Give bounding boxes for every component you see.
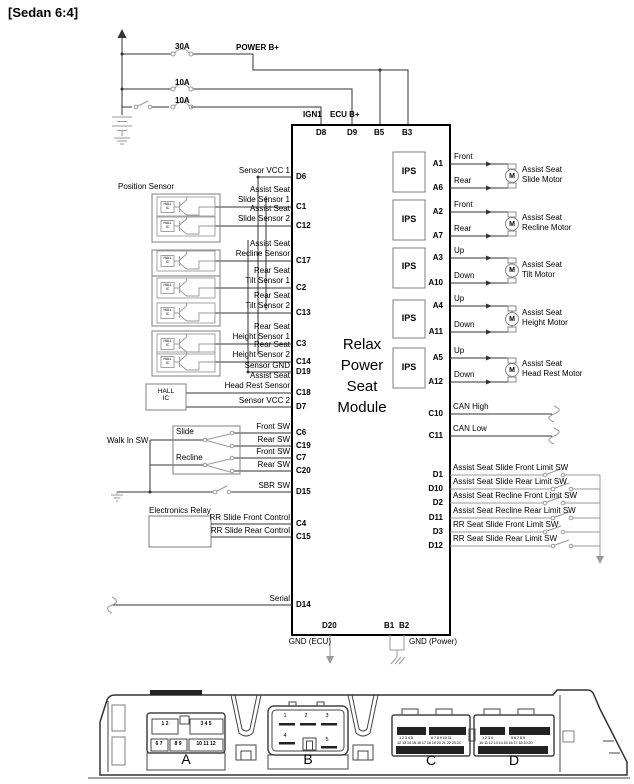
fuse-10a-1-label: 10A xyxy=(175,78,190,88)
connector-pin-numbers: 8 9 xyxy=(175,742,182,747)
motor-name-label: Assist Seat Slide Motor xyxy=(522,165,562,184)
motor-name-label: Assist Seat Recline Motor xyxy=(522,213,571,232)
electronics-relay-box xyxy=(149,516,211,547)
connector-b-label: B xyxy=(303,755,312,765)
signal-label: Front SW xyxy=(256,447,290,457)
pin-label: A10 xyxy=(428,278,443,288)
hall-ic-small-label: HALL IC xyxy=(161,358,174,366)
pin-label-b5: B5 xyxy=(374,128,384,138)
pin-label: C1 xyxy=(296,202,306,212)
hall-ic-small-label: HALL IC xyxy=(161,203,174,211)
ips-label: IPS xyxy=(402,363,417,373)
signal-label: Rear Seat Height Sensor 2 xyxy=(233,340,290,359)
pin-label-b1: B1 xyxy=(384,621,394,631)
can-high-label: CAN High xyxy=(453,402,489,412)
direction-label: Front xyxy=(454,152,473,162)
signal-label: Sensor VCC 2 xyxy=(239,396,290,406)
ground-icon xyxy=(111,492,123,501)
pin-label: C20 xyxy=(296,466,311,476)
pin-label: D3 xyxy=(433,527,443,537)
pin-label: A7 xyxy=(433,231,443,241)
connector-pin-numbers: 6 7 xyxy=(156,742,163,747)
ips-label: IPS xyxy=(402,262,417,272)
module-housing-drawing xyxy=(88,690,630,778)
motor-name-label: Assist Seat Height Motor xyxy=(522,308,568,327)
connector-c-drawing xyxy=(392,709,470,756)
limit-sw-label: Assist Seat Recline Front Limit SW xyxy=(453,491,577,501)
pin-label: A1 xyxy=(433,159,443,169)
wiring-diagram-page: [Sedan 6:4] 30A 10A 10A POWER B+ IGN1 EC… xyxy=(0,0,634,784)
connector-d-drawing xyxy=(474,709,554,756)
fuse-30a-label: 30A xyxy=(175,42,190,52)
hall-ic-small-label: HALL IC xyxy=(161,222,174,230)
serial-label: Serial xyxy=(270,594,290,604)
module-title: Relax Power Seat Module xyxy=(337,334,386,418)
signal-label: Rear Seat Tilt Sensor 2 xyxy=(245,291,290,310)
hall-ic-small-label: HALL IC xyxy=(161,257,174,265)
direction-label: Up xyxy=(454,294,464,304)
ignition-switch-icon xyxy=(134,101,152,109)
mounting-tab-icon xyxy=(348,695,378,760)
pin-label: D7 xyxy=(296,402,306,412)
pin-label: C7 xyxy=(296,453,306,463)
motor-m-label: M xyxy=(509,366,515,376)
sbr-sw-label: SBR SW xyxy=(258,481,290,491)
sbr-switch-icon xyxy=(213,486,231,494)
motor-m-label: M xyxy=(509,315,515,325)
pin-label: C3 xyxy=(296,339,306,349)
pin-label: C13 xyxy=(296,308,311,318)
connector-c-label: C xyxy=(426,756,436,766)
signal-label: Front SW xyxy=(256,422,290,432)
pin-label-d9: D9 xyxy=(347,128,357,138)
direction-label: Front xyxy=(454,200,473,210)
connector-pin-numbers: 12 13 14 15 16 17 18 19 20 21 22 23 24 xyxy=(397,741,461,746)
connector-pin-numbers: 3 4 5 xyxy=(200,722,211,727)
hall-ic-small-label: HALL IC xyxy=(161,309,174,317)
signal-label: Assist Seat Head Rest Sensor xyxy=(225,371,290,390)
arrow-up-icon xyxy=(118,29,127,38)
pin-label: D14 xyxy=(296,600,311,610)
pin-label: D15 xyxy=(296,487,311,497)
motor-name-label: Assist Seat Tilt Motor xyxy=(522,260,562,279)
signal-label: Assist Seat Slide Sensor 2 xyxy=(238,204,290,223)
connector-pin-numbers: 1 2 xyxy=(162,722,169,727)
pin-label: D11 xyxy=(429,513,443,523)
pin-label: C10 xyxy=(428,409,443,419)
pin-label: C6 xyxy=(296,428,306,438)
direction-label: Rear xyxy=(454,176,471,186)
pin-label: D6 xyxy=(296,172,306,182)
signal-label: Rear SW xyxy=(258,460,290,470)
hall-ic-small-label: HALL IC xyxy=(161,284,174,292)
fuse-10a-2-label: 10A xyxy=(175,96,190,106)
pin-label: D2 xyxy=(433,498,443,508)
pin-label: D12 xyxy=(428,541,443,551)
motor-m-label: M xyxy=(509,172,515,182)
connector-pin-numbers: 5 xyxy=(325,737,328,743)
pin-label-b3: B3 xyxy=(402,128,412,138)
battery-icon xyxy=(112,117,132,144)
pin-label: C15 xyxy=(296,532,311,542)
arrow-down-icon xyxy=(596,556,604,564)
gnd-power-wire xyxy=(390,635,405,664)
can-low-label: CAN Low xyxy=(453,424,487,434)
power-b-plus-label: POWER B+ xyxy=(236,43,279,53)
signal-label: RR Slide Front Control xyxy=(210,513,290,523)
slide-label: Slide xyxy=(176,427,194,437)
ign1-label: IGN1 xyxy=(303,110,322,120)
signal-label: Rear Seat Height Sensor 1 xyxy=(233,322,290,341)
pin-label: C4 xyxy=(296,519,306,529)
motor-m-label: M xyxy=(509,220,515,230)
signal-label: Rear Seat Tilt Sensor 1 xyxy=(245,266,290,285)
direction-label: Down xyxy=(454,370,474,380)
direction-label: Up xyxy=(454,346,464,356)
signal-label: RR Slide Rear Control xyxy=(211,526,290,536)
connector-a-label: A xyxy=(181,755,190,765)
recline-label: Recline xyxy=(176,453,203,463)
signal-label: Sensor VCC 1 xyxy=(239,166,290,176)
signal-label: Rear SW xyxy=(258,435,290,445)
position-sensor-label: Position Sensor xyxy=(118,182,174,192)
arrow-down-icon xyxy=(326,656,334,664)
pin-label: C12 xyxy=(296,221,311,231)
direction-label: Rear xyxy=(454,224,471,234)
pin-label: D1 xyxy=(433,470,443,480)
ips-label: IPS xyxy=(402,167,417,177)
hall-ic-box-label: HALL IC xyxy=(158,388,174,402)
mounting-tab-icon xyxy=(231,695,261,760)
connector-pin-numbers: 10 11 12 xyxy=(196,742,215,747)
direction-label: Down xyxy=(454,271,474,281)
connector-pin-numbers: 4 xyxy=(283,733,286,739)
chassis-ground-icon xyxy=(391,657,405,664)
pin-label: A3 xyxy=(433,253,443,263)
gnd-ecu-label: GND (ECU) xyxy=(289,637,331,647)
hall-ic-small-label: HALL IC xyxy=(161,340,174,348)
gnd-power-label: GND (Power) xyxy=(409,637,457,647)
direction-label: Down xyxy=(454,320,474,330)
motor-name-label: Assist Seat Head Rest Motor xyxy=(522,359,582,378)
walk-in-switch-icons xyxy=(203,431,234,473)
page-title: [Sedan 6:4] xyxy=(8,6,78,20)
ips-label: IPS xyxy=(402,314,417,324)
pin-label: A12 xyxy=(428,377,443,387)
connector-d-label: D xyxy=(509,756,519,766)
limit-sw-label: Assist Seat Slide Front Limit SW xyxy=(453,463,568,473)
pin-label: C18 xyxy=(296,388,311,398)
pin-label: A6 xyxy=(433,183,443,193)
pin-label: A4 xyxy=(433,301,443,311)
pin-label: C19 xyxy=(296,441,311,451)
signal-label: Sensor GND xyxy=(245,361,290,371)
limit-sw-label: Assist Seat Slide Rear Limit SW xyxy=(453,477,567,487)
pin-label: D10 xyxy=(428,484,443,494)
pin-label: C11 xyxy=(429,431,443,441)
connector-pin-numbers: 1 xyxy=(283,713,286,719)
direction-label: Up xyxy=(454,246,464,256)
pin-label-b2: B2 xyxy=(399,621,409,631)
pin-label: A2 xyxy=(433,207,443,217)
ecu-b-plus-label: ECU B+ xyxy=(330,110,360,120)
pin-label: C14 xyxy=(296,357,311,367)
electronics-relay-label: Electronics Relay xyxy=(149,506,211,516)
connector-pin-numbers: 3 xyxy=(325,713,328,719)
pin-label-d20: D20 xyxy=(322,621,337,631)
pin-label-d8: D8 xyxy=(316,128,326,138)
connector-pin-numbers: 2 xyxy=(304,713,307,719)
motor-m-label: M xyxy=(509,266,515,276)
limit-sw-label: RR Seat Slide Rear Limit SW xyxy=(453,534,557,544)
pin-label: C17 xyxy=(296,256,311,266)
ips-label: IPS xyxy=(402,215,417,225)
signal-label: Assist Seat Recline Sensor xyxy=(236,239,290,258)
limit-sw-label: RR Seat Slide Front Limit SW xyxy=(453,520,558,530)
pin-label: D19 xyxy=(296,367,311,377)
pin-label: C2 xyxy=(296,283,306,293)
signal-label: Assist Seat Slide Sensor 1 xyxy=(238,185,290,204)
pin-label: A5 xyxy=(433,353,443,363)
connector-pin-numbers: 10 11 12 13 14 15 16 17 18 19 20 xyxy=(479,741,532,746)
limit-sw-label: Assist Seat Recline Rear Limit SW xyxy=(453,506,576,516)
walk-in-sw-label: Walk In SW xyxy=(107,436,148,446)
pin-label: A11 xyxy=(429,327,443,337)
